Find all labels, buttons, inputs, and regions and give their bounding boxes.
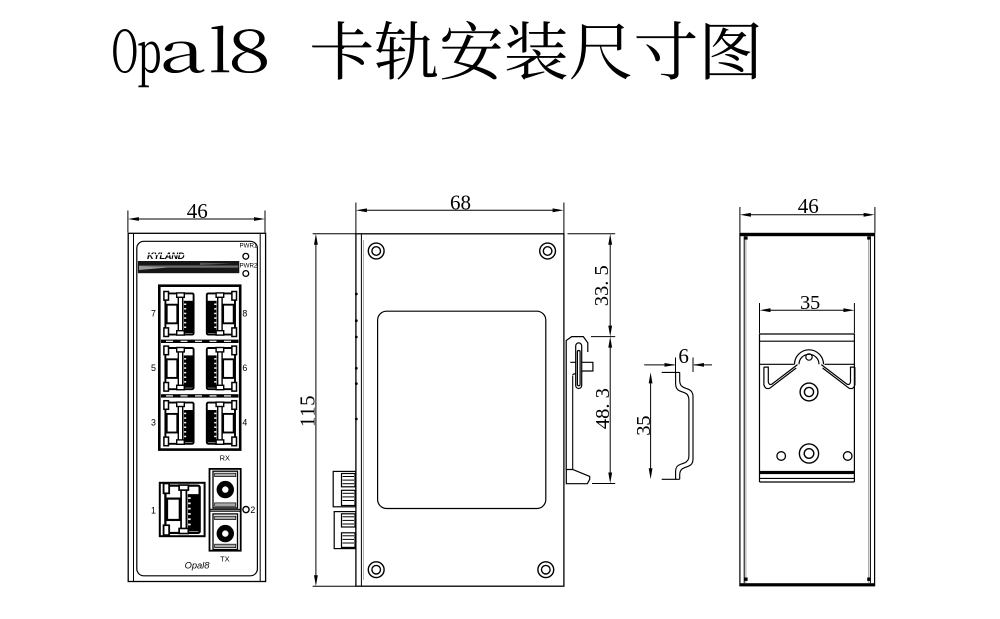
- svg-text:KYLAND: KYLAND: [147, 251, 185, 262]
- svg-text:7: 7: [151, 309, 156, 319]
- svg-text:48. 3: 48. 3: [592, 388, 614, 429]
- svg-text:6: 6: [678, 344, 689, 368]
- svg-text:6: 6: [242, 363, 247, 373]
- svg-text:2: 2: [250, 505, 255, 515]
- svg-text:TX: TX: [220, 555, 230, 564]
- svg-text:RX: RX: [220, 454, 230, 463]
- svg-text:1: 1: [151, 506, 156, 516]
- svg-text:4: 4: [242, 418, 247, 428]
- svg-text:PWR1: PWR1: [240, 242, 258, 249]
- svg-text:3: 3: [151, 418, 156, 428]
- svg-text:PWR2: PWR2: [240, 262, 258, 269]
- svg-text:Opal8: Opal8: [185, 561, 211, 571]
- svg-text:5: 5: [151, 363, 156, 373]
- svg-text:35: 35: [633, 416, 655, 436]
- svg-text:8: 8: [242, 309, 247, 319]
